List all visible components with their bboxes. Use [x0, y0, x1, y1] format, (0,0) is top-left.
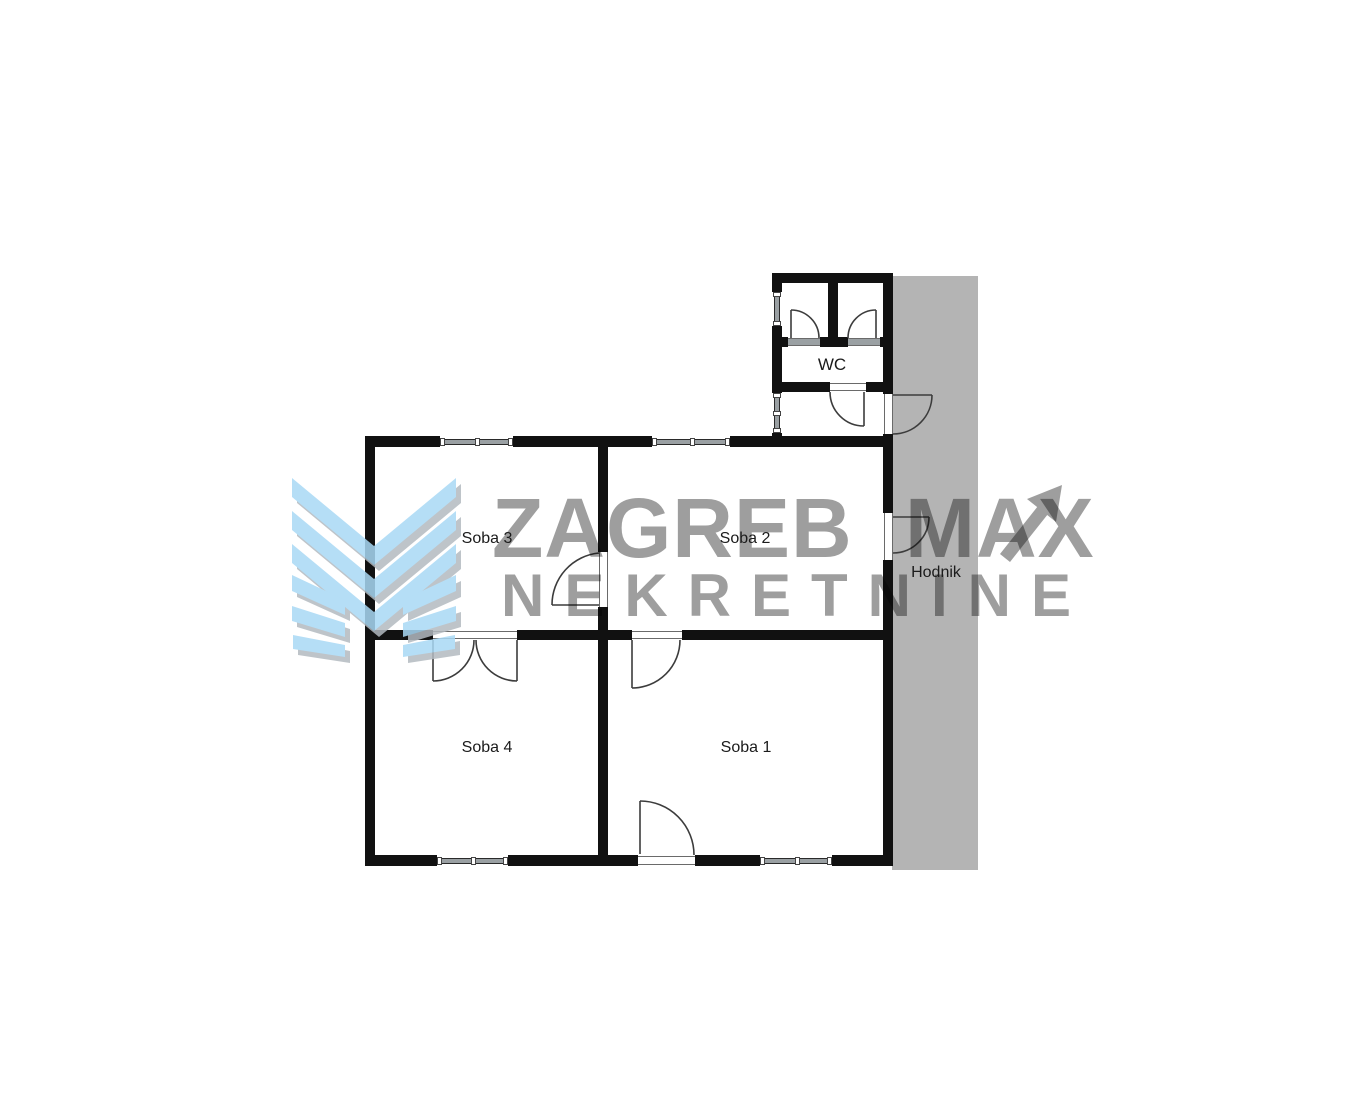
room-label-soba2: Soba 2 [720, 530, 771, 548]
room-label-soba4: Soba 4 [462, 739, 513, 757]
agency-logo-icon [0, 0, 1356, 1120]
room-label-soba1: Soba 1 [721, 739, 772, 757]
room-label-hodnik: Hodnik [911, 564, 961, 582]
room-label-wc: WC [818, 355, 846, 375]
room-label-soba3: Soba 3 [462, 530, 513, 548]
floor-plan: ZAGREB MAX NEKRETNINE [0, 0, 1356, 1120]
